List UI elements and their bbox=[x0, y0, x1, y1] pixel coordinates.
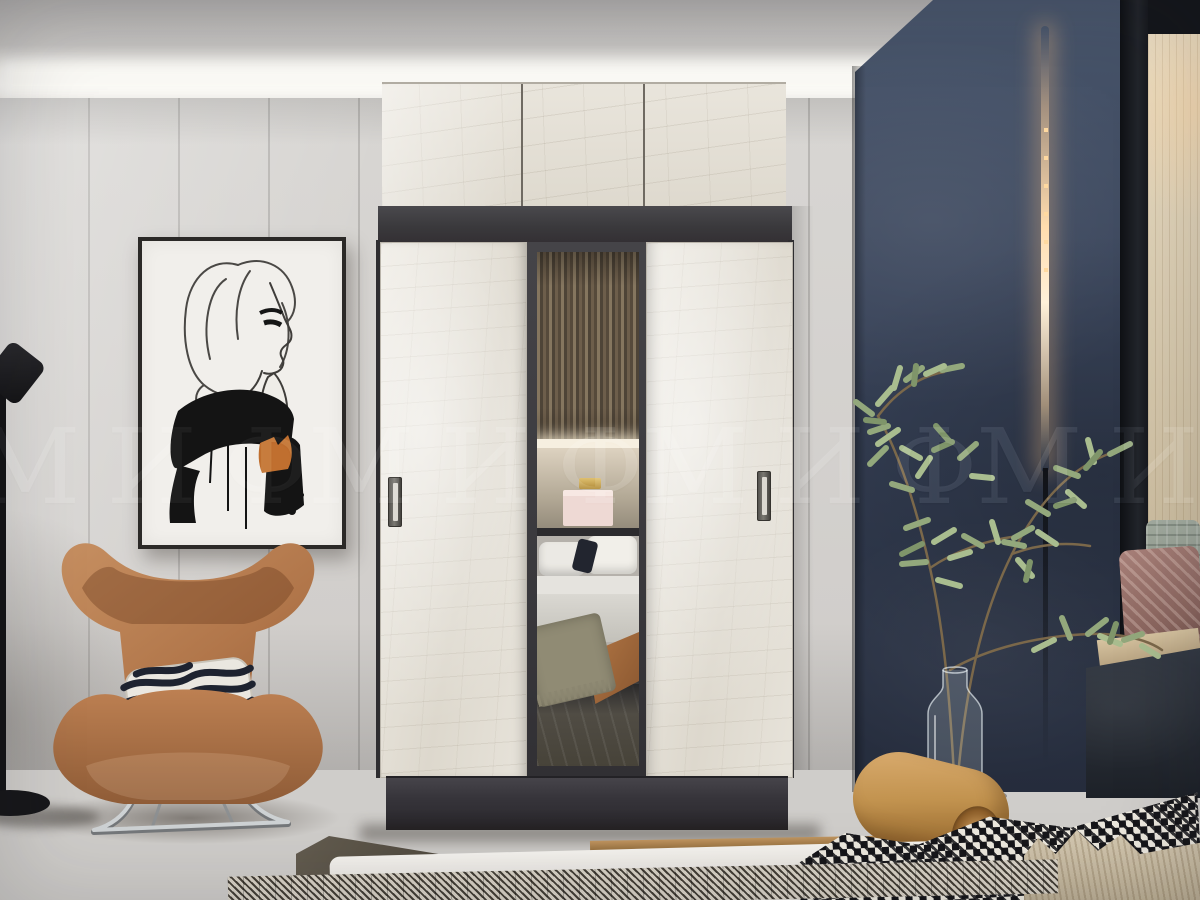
mirror-reflection-gold-item bbox=[579, 478, 601, 489]
upper-cabinet-door-seam bbox=[521, 84, 523, 208]
door-handle-right bbox=[757, 471, 771, 521]
wardrobe-plinth bbox=[386, 776, 788, 830]
wardrobe-sliding-door-left bbox=[380, 242, 527, 778]
wardrobe-side-shadow bbox=[792, 206, 814, 770]
mirror-reflection-bed bbox=[537, 536, 639, 766]
plant-in-vase bbox=[842, 330, 1172, 808]
window-nook-header bbox=[1148, 0, 1200, 34]
chair-legs bbox=[94, 800, 288, 832]
plant-stems bbox=[878, 372, 1162, 776]
sketch-drips bbox=[210, 441, 246, 529]
upper-cabinet-door-seam bbox=[643, 84, 645, 208]
wardrobe-mirror bbox=[537, 252, 639, 766]
bedroom-photo: МИФ МИФ МИФ МИФ bbox=[0, 0, 1200, 900]
wing-armchair bbox=[48, 526, 328, 836]
sketch-lash bbox=[264, 322, 281, 325]
wardrobe-upper-cabinet bbox=[382, 82, 786, 208]
fashion-sketch bbox=[142, 241, 342, 545]
framed-artwork bbox=[138, 237, 346, 549]
plant-leaves bbox=[856, 366, 1158, 656]
led-beads bbox=[1044, 128, 1048, 278]
wardrobe-sliding-track bbox=[378, 206, 792, 244]
chair-seat-highlight bbox=[86, 753, 290, 801]
door-handle-left bbox=[388, 477, 402, 527]
handle-grip bbox=[393, 483, 398, 521]
mirror-reflection-slat-wall bbox=[537, 252, 639, 442]
chair-back-inner-shade bbox=[82, 567, 294, 624]
mirror-reflection-box bbox=[563, 490, 613, 526]
sketch-brow bbox=[260, 310, 282, 313]
floor-lamp-pole bbox=[0, 392, 6, 798]
handle-grip bbox=[762, 477, 767, 515]
sketch-shoulder-left bbox=[169, 465, 200, 523]
mirror-reflection-shelf bbox=[537, 528, 639, 536]
